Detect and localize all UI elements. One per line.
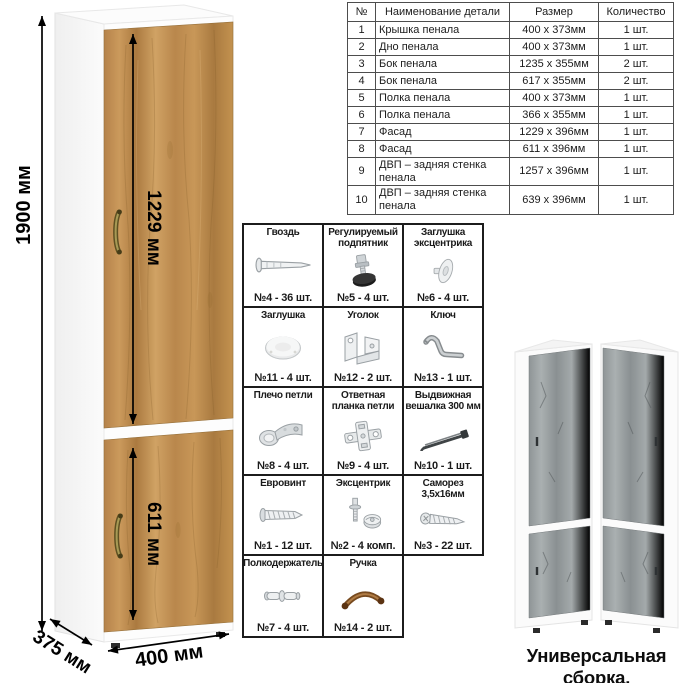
hardware-count: №14 - 2 шт. — [334, 622, 392, 635]
self-tapping-screw-icon — [414, 505, 472, 535]
nail-icon — [251, 250, 315, 280]
table-row: 7Фасад1229 х 396мм1 шт. — [348, 124, 674, 141]
hardware-name: Гвоздь — [266, 227, 299, 238]
hinge-arm-icon — [254, 411, 312, 451]
hardware-name: Заглушка эксцентрика — [405, 227, 481, 249]
handle-icon — [332, 578, 394, 614]
hardware-name: Евровинт — [260, 478, 306, 489]
assembly-scheme-page: 1900 мм 1229 мм 611 мм 375 мм 400 мм № Н… — [0, 0, 700, 683]
shelf-pin-icon — [254, 582, 312, 610]
header-qty: Количество — [599, 3, 674, 22]
lower-door — [104, 430, 233, 632]
hardware-name: Полкодержатель — [243, 558, 323, 569]
header-size: Размер — [510, 3, 599, 22]
hardware-count: №5 - 4 шт. — [337, 292, 389, 305]
hardware-count: №6 - 4 шт. — [417, 292, 469, 305]
hardware-count: №1 - 12 шт. — [254, 540, 312, 553]
hardware-cell-handle: Ручка №14 - 2 шт. — [322, 554, 404, 638]
height-dimension-label: 1900 мм — [13, 165, 35, 245]
hardware-name: Выдвижная вешалка 300 мм — [405, 390, 481, 412]
hardware-cell-cam-cover: Заглушка эксцентрика №6 - 4 шт. — [402, 223, 484, 308]
hardware-cell-cam-lock: Эксцентрик №2 - 4 комп. — [322, 474, 404, 556]
table-row: 2Дно пенала400 х 373мм1 шт. — [348, 39, 674, 56]
angle-bracket-icon — [335, 327, 391, 367]
hardware-name: Ручка — [349, 558, 376, 569]
hardware-cell-confirmat: Евровинт №1 - 12 шт. — [242, 474, 324, 556]
table-row: 1Крышка пенала400 х 373мм1 шт. — [348, 22, 674, 39]
hardware-cell-hinge-plate: Ответная планка петли №9 - 4 шт. — [322, 386, 404, 476]
table-row: 8Фасад611 х 396мм1 шт. — [348, 141, 674, 158]
cabinet-side-panel — [55, 13, 104, 642]
hardware-count: №3 - 22 шт. — [414, 540, 472, 553]
hardware-grid: Гвоздь №4 - 36 шт. Регулируемый подпятни… — [242, 223, 488, 636]
hardware-cell-angle-bracket: Уголок №12 - 2 шт. — [322, 306, 404, 388]
confirmat-screw-icon — [252, 500, 314, 530]
cam-lock-icon — [337, 496, 389, 534]
header-num: № — [348, 3, 376, 22]
universal-assembly-illustration — [493, 322, 700, 642]
table-row: 6Полка пенала366 х 355мм1 шт. — [348, 107, 674, 124]
hardware-count: №12 - 2 шт. — [334, 372, 392, 385]
upper-door — [104, 22, 233, 428]
hardware-name: Уголок — [347, 310, 378, 321]
header-name: Наименование детали — [376, 3, 510, 22]
hinge-plate-icon — [335, 416, 391, 456]
hardware-cell-self-tapping-screw: Саморез 3,5х16мм №3 - 22 шт. — [402, 474, 484, 556]
hardware-count: №13 - 1 шт. — [414, 372, 472, 385]
hardware-cell-cover-cap: Заглушка №11 - 4 шт. — [242, 306, 324, 388]
table-header-row: № Наименование детали Размер Количество — [348, 3, 674, 22]
table-row: 9ДВП – задняя стенка пенала1257 х 396мм1… — [348, 158, 674, 186]
hardware-cell-hinge-arm: Плечо петли №8 - 4 шт. — [242, 386, 324, 476]
table-row: 10ДВП – задняя стенка пенала639 х 396мм1… — [348, 186, 674, 214]
hardware-count: №7 - 4 шт. — [257, 622, 309, 635]
universal-cabinet-right — [601, 340, 678, 633]
hardware-count: №10 - 1 шт. — [414, 460, 472, 473]
height-dimension-arrow — [38, 16, 46, 631]
hardware-name: Плечо петли — [254, 390, 313, 401]
hardware-cell-shelf-pin: Полкодержатель №7 - 4 шт. — [242, 554, 324, 638]
table-row: 5Полка пенала400 х 373мм1 шт. — [348, 90, 674, 107]
hardware-cell-key: Ключ №13 - 1 шт. — [402, 306, 484, 388]
hardware-count: №11 - 4 шт. — [254, 372, 311, 385]
hardware-name: Ответная планка петли — [325, 390, 401, 412]
hardware-count: №8 - 4 шт. — [257, 460, 309, 473]
lower-door-dimension-label: 611 мм — [143, 502, 164, 566]
hardware-name: Регулируемый подпятник — [325, 227, 401, 249]
table-row: 3Бок пенала1235 х 355мм2 шт. — [348, 56, 674, 73]
cover-cap-icon — [254, 329, 312, 365]
hardware-count: №4 - 36 шт. — [254, 292, 312, 305]
pullout-hanger-icon — [412, 421, 474, 451]
cabinet-drawing: 1900 мм 1229 мм 611 мм 375 мм 400 мм — [0, 0, 250, 683]
hardware-cell-pullout-hanger: Выдвижная вешалка 300 мм №10 - 1 шт. — [402, 386, 484, 476]
universal-cabinet-left — [515, 340, 592, 633]
universal-assembly-caption: Универсальная сборка. — [493, 645, 700, 683]
hardware-count: №9 - 4 шт. — [337, 460, 389, 473]
upper-door-dimension-label: 1229 мм — [143, 190, 164, 266]
cam-cover-icon — [418, 253, 468, 289]
hardware-name: Эксцентрик — [336, 478, 390, 489]
parts-table: № Наименование детали Размер Количество … — [347, 2, 674, 215]
hardware-name: Заглушка — [261, 310, 305, 321]
hex-key-icon — [415, 329, 471, 365]
hardware-name: Ключ — [430, 310, 455, 321]
hardware-cell-nail: Гвоздь №4 - 36 шт. — [242, 223, 324, 308]
table-row: 4Бок пенала617 х 355мм2 шт. — [348, 73, 674, 90]
adjustable-foot-icon — [338, 252, 388, 290]
hardware-count: №2 - 4 комп. — [331, 540, 396, 553]
hardware-cell-adjustable-foot: Регулируемый подпятник №5 - 4 шт. — [322, 223, 404, 308]
hardware-name: Саморез 3,5х16мм — [405, 478, 481, 500]
